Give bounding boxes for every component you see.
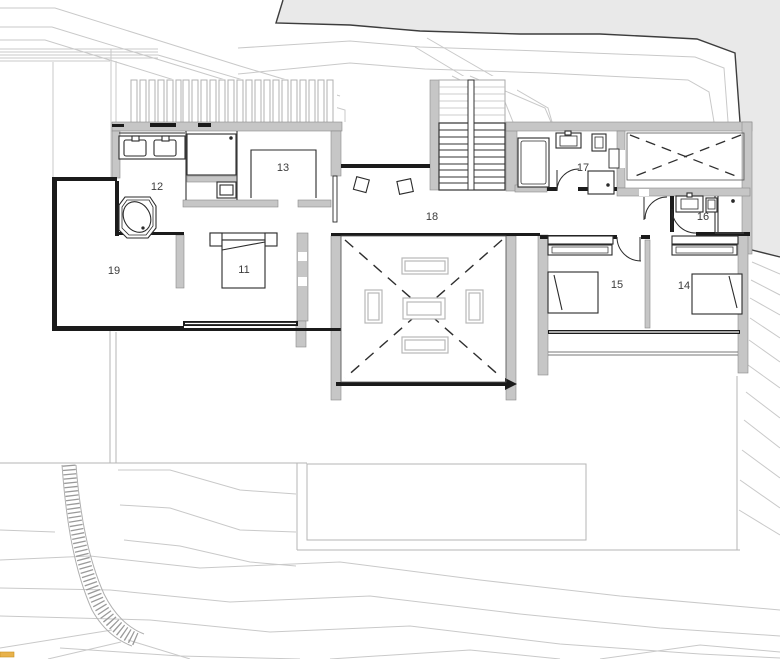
room-label-15: 15 <box>611 279 623 291</box>
bed-room-15 <box>548 272 598 313</box>
door-leaf-closet <box>609 149 619 168</box>
room-label-11: 11 <box>238 264 249 276</box>
vanity-double-sink <box>119 133 185 159</box>
room-label-13: 13 <box>277 162 289 174</box>
pool-outline <box>307 464 586 540</box>
floor-plan-drawing: 11 12 13 14 15 16 17 18 19 <box>0 0 780 659</box>
room-label-16: 16 <box>697 211 709 223</box>
stool-2 <box>397 179 413 195</box>
bed-room-14 <box>692 274 742 314</box>
floor-plan-canvas: 11 12 13 14 15 16 17 18 19 <box>0 0 780 659</box>
room-label-14: 14 <box>678 280 690 292</box>
sliding-door-leaf <box>333 176 337 222</box>
room-label-19: 19 <box>108 265 120 277</box>
room-label-17: 17 <box>577 162 589 174</box>
room-label-12: 12 <box>151 181 163 193</box>
room-label-18: 18 <box>426 211 438 223</box>
wardrobe-room-14 <box>672 236 738 255</box>
wardrobe-room-15 <box>548 236 613 255</box>
bathtub <box>118 197 157 238</box>
louver-band <box>131 80 333 123</box>
stool-1 <box>353 177 369 193</box>
yellow-marker <box>0 652 14 657</box>
staircase <box>439 80 505 190</box>
